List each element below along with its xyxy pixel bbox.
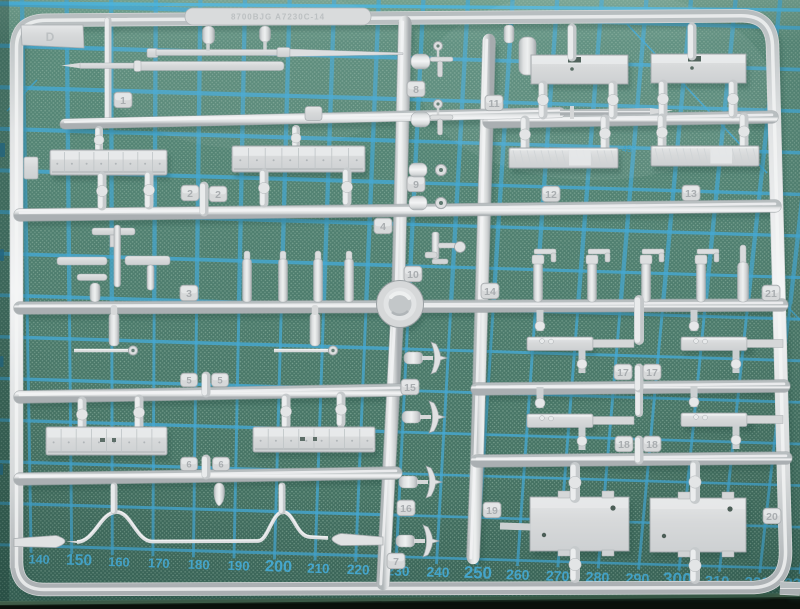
svg-text:5: 5 — [217, 376, 223, 387]
svg-text:12: 12 — [545, 189, 557, 201]
svg-text:1: 1 — [120, 95, 126, 107]
svg-text:5: 5 — [186, 376, 192, 387]
svg-text:3: 3 — [186, 288, 192, 300]
svg-text:16: 16 — [400, 503, 412, 515]
svg-text:D: D — [46, 30, 55, 44]
svg-text:8: 8 — [413, 84, 419, 96]
svg-text:10: 10 — [407, 269, 419, 281]
svg-text:13: 13 — [685, 188, 697, 200]
svg-text:6: 6 — [186, 460, 191, 471]
svg-text:6: 6 — [218, 460, 223, 471]
svg-text:18: 18 — [646, 439, 658, 451]
svg-text:21: 21 — [765, 288, 777, 300]
svg-text:17: 17 — [617, 367, 629, 379]
svg-text:19: 19 — [486, 505, 498, 517]
svg-text:7: 7 — [393, 556, 399, 568]
svg-text:2: 2 — [187, 188, 193, 200]
svg-text:15: 15 — [404, 382, 416, 394]
svg-text:9: 9 — [413, 179, 419, 191]
svg-text:8700BJG A7230C-14: 8700BJG A7230C-14 — [231, 13, 325, 22]
svg-text:2: 2 — [215, 189, 221, 201]
svg-text:20: 20 — [766, 511, 778, 523]
svg-text:18: 18 — [618, 439, 630, 451]
svg-text:17: 17 — [646, 367, 658, 379]
svg-text:14: 14 — [484, 286, 496, 298]
svg-text:4: 4 — [380, 221, 386, 233]
svg-text:11: 11 — [488, 98, 499, 110]
